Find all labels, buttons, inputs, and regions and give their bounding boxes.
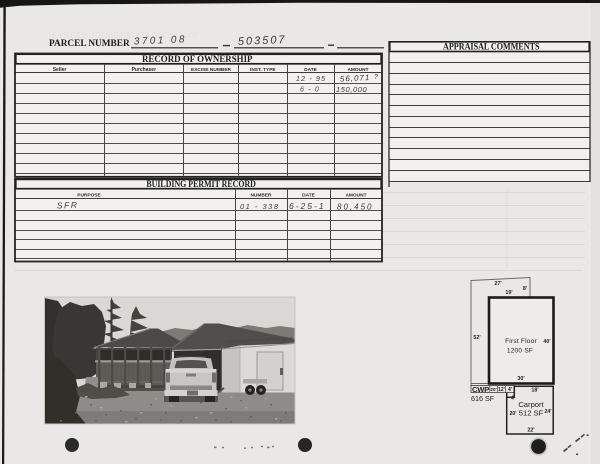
svg-text:AMOUNT: AMOUNT <box>345 192 366 198</box>
svg-text:30': 30' <box>517 376 524 382</box>
svg-text:3701 08: 3701 08 <box>134 34 187 47</box>
svg-text:18': 18' <box>531 388 538 394</box>
svg-text:DATE: DATE <box>304 67 318 73</box>
svg-text:PARCEL NUMBER: PARCEL NUMBER <box>49 39 130 49</box>
svg-text:4': 4' <box>508 387 512 393</box>
svg-text:DATE: DATE <box>302 192 316 198</box>
svg-text:40': 40' <box>543 339 550 345</box>
svg-text:SFR: SFR <box>57 200 79 211</box>
svg-text:8': 8' <box>523 286 527 292</box>
svg-text:4': 4' <box>511 396 515 402</box>
svg-text:20': 20' <box>509 411 516 417</box>
svg-text:27': 27' <box>494 281 501 287</box>
svg-text:56,071: 56,071 <box>340 73 371 84</box>
svg-text:BUILDING PERMIT RECORD: BUILDING PERMIT RECORD <box>146 179 256 190</box>
svg-text:503507: 503507 <box>238 34 287 48</box>
svg-text:APPRAISAL COMMENTS: APPRAISAL COMMENTS <box>443 42 540 52</box>
svg-text:Purchaser: Purchaser <box>132 67 157 73</box>
svg-text:Seller: Seller <box>53 67 67 73</box>
svg-text:AMOUNT: AMOUNT <box>347 67 368 73</box>
svg-text:22': 22' <box>527 428 534 434</box>
svg-text:616 SF: 616 SF <box>471 394 495 403</box>
svg-text:52': 52' <box>473 335 480 341</box>
svg-text:First Floor: First Floor <box>505 338 537 345</box>
svg-text:150,000: 150,000 <box>336 85 368 94</box>
svg-text:01 - 338: 01 - 338 <box>240 202 280 211</box>
svg-text:512 SF: 512 SF <box>519 409 544 418</box>
svg-text:PURPOSE: PURPOSE <box>77 192 101 198</box>
svg-text:24': 24' <box>544 409 551 415</box>
svg-text:NUMBER: NUMBER <box>250 192 272 198</box>
svg-text:6-25-1: 6-25-1 <box>289 201 326 211</box>
svg-text:6 - 0: 6 - 0 <box>300 87 320 94</box>
svg-text:19': 19' <box>505 290 512 296</box>
svg-text:20': 20' <box>490 387 496 392</box>
svg-text:INST. TYPE: INST. TYPE <box>250 67 276 73</box>
svg-text:12 - 95: 12 - 95 <box>296 76 326 83</box>
svg-text:12': 12' <box>498 387 505 393</box>
svg-text:EXCISE NUMBER: EXCISE NUMBER <box>191 67 232 73</box>
svg-text:80,450: 80,450 <box>337 203 373 212</box>
svg-text:1200 SF: 1200 SF <box>507 348 533 355</box>
svg-text:?: ? <box>374 74 378 81</box>
svg-text:RECORD OF OWNERSHIP: RECORD OF OWNERSHIP <box>142 54 253 65</box>
